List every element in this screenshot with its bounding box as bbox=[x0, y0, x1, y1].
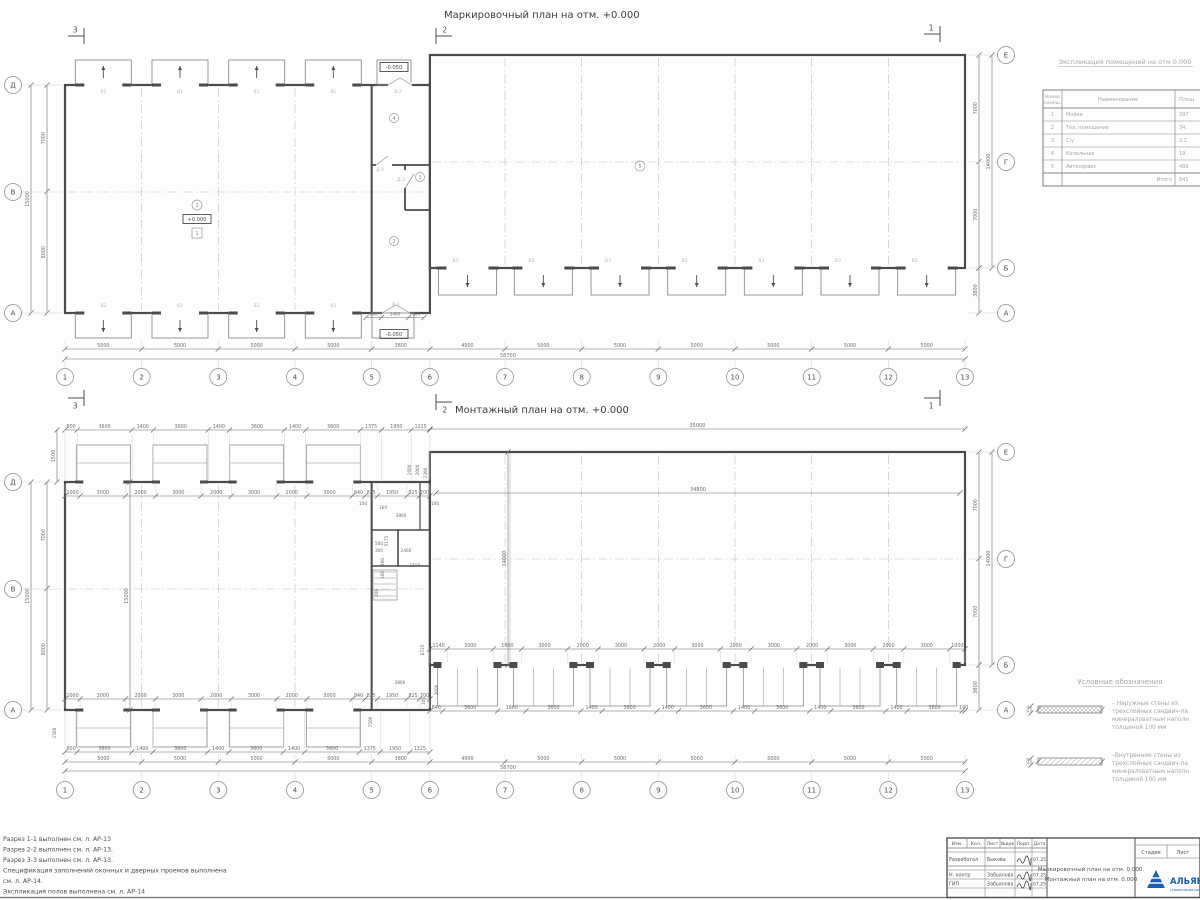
dim-label: 5000 bbox=[921, 756, 933, 762]
gate-leaf bbox=[590, 665, 650, 706]
table-cell: Тех. помещение bbox=[1065, 125, 1109, 131]
dim-label: 5000 bbox=[97, 343, 109, 349]
dim-label: 825 bbox=[367, 490, 376, 496]
tb-name: Забьялова bbox=[987, 873, 1014, 879]
dim-label: 3000 bbox=[248, 490, 260, 496]
dim-label: 2000 bbox=[730, 643, 742, 649]
wall-jamb bbox=[742, 267, 752, 270]
arrow-head bbox=[541, 283, 545, 287]
dim-label: 34800 bbox=[690, 487, 706, 493]
note-line: см. л. АР-14. bbox=[3, 878, 43, 885]
dim-label: 5000 bbox=[537, 343, 549, 349]
arrow-head bbox=[771, 283, 775, 287]
gate-leaf bbox=[76, 710, 130, 747]
axis-number: 3 bbox=[216, 374, 220, 382]
dim-label: 15000 bbox=[124, 588, 130, 604]
dim-label: 1860 bbox=[501, 643, 513, 649]
signature bbox=[1017, 872, 1031, 881]
wall-jamb bbox=[876, 662, 884, 668]
tb-header: №док bbox=[1001, 841, 1015, 847]
dim-label: 3000 bbox=[97, 693, 109, 699]
opening-label: Д-4 bbox=[376, 167, 384, 173]
dim-label: 1140 bbox=[433, 643, 445, 649]
wall-jamb bbox=[305, 709, 313, 712]
opening-label: В3 bbox=[528, 258, 534, 264]
dim-label: 800 bbox=[67, 424, 76, 430]
dim-label: 3000 bbox=[464, 643, 476, 649]
section-number: 1 bbox=[929, 402, 934, 411]
dim-label: 2000 bbox=[210, 490, 222, 496]
opening-gap bbox=[901, 663, 953, 668]
table-cell: 297 bbox=[1179, 112, 1189, 118]
dim-label: 5000 bbox=[614, 756, 626, 762]
arrow-head bbox=[101, 66, 105, 70]
axis-letter: Е bbox=[1004, 52, 1008, 60]
company-logo-icon bbox=[1147, 870, 1165, 888]
opening-label: В2 bbox=[330, 303, 336, 309]
gate-leaf bbox=[76, 445, 130, 482]
opening-gap bbox=[519, 266, 567, 271]
plan-title: Монтажный план на отм. +0.000 bbox=[455, 405, 629, 416]
dim-label: 3600 bbox=[624, 705, 636, 711]
dim-label: 2000 bbox=[134, 490, 146, 496]
arrow-head bbox=[695, 283, 699, 287]
arrow-head bbox=[178, 328, 182, 332]
table-header: Площ bbox=[1179, 97, 1194, 103]
free-dim-label: 3000 bbox=[434, 684, 439, 695]
table-total-label: Итого bbox=[1157, 177, 1172, 183]
free-dim-label: 100 bbox=[359, 501, 367, 506]
gate-leaf bbox=[153, 710, 207, 747]
dim-label: 7000 bbox=[41, 529, 47, 541]
dim-label: 5000 bbox=[251, 756, 263, 762]
opening-gap bbox=[517, 663, 569, 668]
table-cell: 19, bbox=[1179, 151, 1187, 157]
legend-text: трехслойных сэндвич-па bbox=[1112, 708, 1189, 715]
dim-label: 8000 bbox=[41, 643, 47, 655]
free-dim-label: 7500 bbox=[368, 716, 373, 727]
opening-label: В3 bbox=[835, 258, 841, 264]
dim-label: 1400 bbox=[137, 424, 149, 430]
dim-label: 1400 bbox=[890, 705, 902, 711]
free-dim-label: 400 bbox=[380, 558, 385, 566]
section-number: 1 bbox=[929, 24, 934, 33]
dim-label: 3600 bbox=[251, 424, 263, 430]
opening-label: В1 bbox=[100, 89, 106, 95]
dim-label: 800 bbox=[412, 312, 420, 317]
dim-label: 1500 bbox=[51, 450, 57, 463]
table-title: Экспликация помещений на отм 0.000 bbox=[1059, 58, 1192, 66]
dim-label: 3000 bbox=[691, 643, 703, 649]
wall-jamb bbox=[229, 481, 237, 484]
wall-jamb bbox=[586, 662, 594, 668]
opening-label: В3 bbox=[682, 258, 688, 264]
dim-label: 3000 bbox=[97, 490, 109, 496]
dim-label: 3000 bbox=[538, 643, 550, 649]
dim-label: 1400 bbox=[585, 705, 597, 711]
wall-jamb bbox=[277, 481, 285, 484]
dim-label: 5000 bbox=[537, 756, 549, 762]
dim-label: 3600 bbox=[852, 705, 864, 711]
legend-text: –Внутренние стены из bbox=[1112, 753, 1181, 759]
opening-label: В2 bbox=[254, 303, 260, 309]
table-cell: 34, bbox=[1179, 125, 1187, 131]
axis-letter: А bbox=[11, 707, 16, 715]
company-logo-subtext: строительная компания bbox=[1170, 888, 1200, 892]
axis-letter: Б bbox=[1004, 265, 1009, 273]
table-header: помещ. bbox=[1044, 101, 1062, 106]
axis-letter: Г bbox=[1004, 159, 1008, 167]
opening-gap bbox=[673, 266, 721, 271]
gate-leaf bbox=[820, 665, 880, 706]
tb-doc-title: Маркировочный план на отм. 0.000. bbox=[1038, 866, 1145, 873]
wall-jamb bbox=[276, 84, 285, 87]
gate-leaf bbox=[513, 665, 573, 706]
gate-leaf bbox=[437, 665, 497, 706]
axis-number: 8 bbox=[579, 374, 583, 382]
axis-number: 12 bbox=[884, 374, 893, 382]
gate-leaf bbox=[743, 665, 803, 706]
wall-jamb bbox=[122, 84, 131, 87]
table-cell: Автосервис bbox=[1066, 164, 1097, 170]
legend-title: Условные обозначения bbox=[1078, 678, 1163, 686]
axis-letter: А bbox=[1004, 707, 1009, 715]
tb-name: Забьялова bbox=[987, 882, 1014, 888]
wall-jamb bbox=[723, 662, 731, 668]
wall-jamb bbox=[277, 709, 285, 712]
dim-label: 3600 bbox=[327, 424, 339, 430]
dim-label: 1375 bbox=[365, 424, 377, 430]
opening-gap bbox=[443, 266, 491, 271]
opening-gap bbox=[234, 480, 280, 485]
dim-label: 1000 bbox=[66, 693, 78, 699]
dim-label: 1950 bbox=[390, 424, 402, 430]
axis-letter: А bbox=[11, 310, 16, 318]
axis-letter: Д bbox=[10, 82, 16, 90]
dim-label: 5000 bbox=[327, 343, 339, 349]
gate-leaf bbox=[153, 445, 207, 482]
dim-label: 2000 bbox=[210, 693, 222, 699]
arrow-head bbox=[331, 328, 335, 332]
dim-label: 1400 bbox=[814, 705, 826, 711]
arrow-head bbox=[331, 66, 335, 70]
dim-label: 1400 bbox=[738, 705, 750, 711]
wall-jamb bbox=[199, 312, 208, 315]
opening-label: В2 bbox=[100, 303, 106, 309]
opening-gap bbox=[824, 663, 876, 668]
dim-label: 4900 bbox=[461, 343, 473, 349]
opening-gap bbox=[596, 266, 644, 271]
tb-header: Лист bbox=[987, 841, 999, 847]
free-dim-label: 1500 bbox=[52, 727, 57, 738]
wall-jamb bbox=[122, 312, 131, 315]
wall-jamb bbox=[718, 267, 728, 270]
free-dim-label: 8725 bbox=[420, 644, 425, 655]
legend-text: – Наружные стены из bbox=[1112, 701, 1178, 707]
opening-label: Д-3 bbox=[397, 177, 405, 183]
axis-number: 7 bbox=[503, 374, 507, 382]
dim-label: 1400 bbox=[288, 746, 300, 752]
opening-gap bbox=[747, 663, 799, 668]
opening-label: В-1 bbox=[392, 302, 400, 308]
tb-header: Кол. bbox=[971, 841, 981, 847]
opening-gap bbox=[157, 83, 203, 88]
wall-jamb bbox=[666, 267, 676, 270]
dim-label: 1950 bbox=[386, 490, 398, 496]
arrow-head bbox=[178, 66, 182, 70]
table-cell: 1 bbox=[1051, 112, 1054, 118]
dim-label: 14000 bbox=[986, 551, 992, 567]
wall-jamb bbox=[433, 662, 441, 668]
dim-label: 3800 bbox=[973, 284, 979, 297]
tb-role: Разработал bbox=[949, 857, 978, 863]
dim-label: 3000 bbox=[172, 490, 184, 496]
axis-number: 2 bbox=[139, 787, 143, 795]
section-number: 2 bbox=[442, 26, 447, 35]
table-cell: 3 bbox=[1051, 138, 1054, 144]
wall-jamb bbox=[305, 481, 313, 484]
wall-jamb bbox=[739, 662, 747, 668]
elevation-value: -0.050 bbox=[386, 65, 403, 71]
wall-jamb bbox=[794, 267, 804, 270]
dim-label: 5000 bbox=[97, 756, 109, 762]
note-line: Спецификация заполнений оконных и дверны… bbox=[3, 867, 227, 875]
free-dim-label: 160 bbox=[379, 505, 387, 510]
wall-jamb bbox=[353, 481, 361, 484]
opening-gap bbox=[310, 83, 356, 88]
wall-jamb bbox=[75, 709, 83, 712]
tb-date: 07.25 bbox=[1033, 857, 1046, 863]
opening-label: В3 bbox=[452, 258, 458, 264]
dim-label: 5000 bbox=[251, 343, 263, 349]
opening-gap bbox=[80, 311, 126, 316]
table-cell: Капельная bbox=[1066, 151, 1094, 157]
signature bbox=[1017, 856, 1031, 865]
dim-label: 5000 bbox=[614, 343, 626, 349]
opening-gap bbox=[310, 480, 356, 485]
table-cell: 2,2 bbox=[1179, 138, 1187, 144]
dim-label: 7000 bbox=[973, 606, 979, 618]
wall-jamb bbox=[229, 84, 238, 87]
arrow-head bbox=[255, 66, 259, 70]
dim-label: 1950 bbox=[386, 693, 398, 699]
axis-number: 4 bbox=[293, 787, 298, 795]
opening-gap bbox=[594, 663, 646, 668]
axis-number: 10 bbox=[731, 374, 740, 382]
wall-jamb bbox=[948, 267, 958, 270]
dim-label: 3800 bbox=[395, 756, 407, 762]
dim-label: 5000 bbox=[921, 343, 933, 349]
axis-number: 9 bbox=[656, 787, 660, 795]
wall-jamb bbox=[200, 481, 208, 484]
free-dim-label: 100 bbox=[421, 697, 426, 705]
table-header: Номер bbox=[1045, 94, 1061, 100]
wall-jamb bbox=[75, 312, 84, 315]
dim-label: 3800 bbox=[973, 681, 979, 694]
table-cell: 2 bbox=[1051, 125, 1054, 131]
tb-header: Подп. bbox=[1017, 841, 1031, 847]
axis-letter: А bbox=[1004, 310, 1009, 318]
axis-letter: Б bbox=[1004, 662, 1009, 670]
wall-jamb bbox=[493, 662, 501, 668]
tb-doc-title: Монтажный план на отм. 0.000 bbox=[1045, 876, 1138, 883]
table-cell: 486 bbox=[1179, 164, 1189, 170]
wall-jamb bbox=[305, 312, 314, 315]
dim-label: 3600 bbox=[250, 746, 262, 752]
dim-label: 3600 bbox=[99, 424, 111, 430]
opening-gap bbox=[157, 708, 203, 713]
wall-jamb bbox=[152, 312, 161, 315]
wall-jamb bbox=[229, 709, 237, 712]
legend-text: трехслойных сэндвич-па bbox=[1112, 760, 1189, 767]
dim-label: 1325 bbox=[414, 746, 426, 752]
dim-label: 3000 bbox=[768, 643, 780, 649]
arrow-head bbox=[255, 328, 259, 332]
dim-label: 2000 bbox=[882, 643, 894, 649]
dim-label: 1400 bbox=[662, 705, 674, 711]
dim-label: 2000 bbox=[286, 490, 298, 496]
free-dim-label: 2460 bbox=[401, 548, 412, 553]
dim-label: 2000 bbox=[577, 643, 589, 649]
note-line: Экспликация полов выполнена см. л. АР-14 bbox=[3, 889, 145, 896]
legend-text: минераловатным наполн bbox=[1112, 769, 1189, 775]
wall-jamb bbox=[353, 709, 361, 712]
axis-number: 4 bbox=[293, 374, 298, 382]
wall-jamb bbox=[589, 267, 599, 270]
wall-jamb bbox=[352, 84, 361, 87]
opening-gap bbox=[310, 708, 356, 713]
dim-label: 840 bbox=[432, 705, 441, 711]
axis-number: 5 bbox=[369, 787, 373, 795]
room-number: 5 bbox=[638, 164, 641, 170]
free-dim-label: 1600 bbox=[407, 464, 412, 475]
wall-jamb bbox=[229, 312, 238, 315]
dim-label: 3600 bbox=[929, 705, 941, 711]
dim-label: 3600 bbox=[464, 705, 476, 711]
axis-number: 11 bbox=[807, 374, 816, 382]
table-total-value: 841 bbox=[1179, 177, 1189, 183]
wall-jamb bbox=[893, 662, 901, 668]
opening-label: В1 bbox=[177, 89, 183, 95]
wall-jamb bbox=[512, 267, 522, 270]
dim-label: 1860 bbox=[506, 705, 518, 711]
plan-title: Маркировочный план на отм. +0.000 bbox=[444, 10, 640, 21]
elevation-value: +0.000 bbox=[187, 217, 206, 223]
elevation-value: -0.050 bbox=[386, 332, 403, 338]
opening-label: В3 bbox=[912, 258, 918, 264]
dim-label: 2000 bbox=[286, 693, 298, 699]
dim-label: 35000 bbox=[690, 423, 706, 429]
dim-label: 3000 bbox=[844, 643, 856, 649]
tb-header: Изм. bbox=[952, 841, 963, 847]
wall-jamb bbox=[569, 662, 577, 668]
arrow-head bbox=[925, 283, 929, 287]
opening-gap bbox=[903, 266, 951, 271]
free-dim-label: 200 bbox=[374, 589, 379, 597]
tb-role: ГИП bbox=[949, 882, 960, 888]
dim-label: 5000 bbox=[767, 343, 779, 349]
gate-leaf bbox=[230, 445, 284, 482]
free-dim-label: 5175 bbox=[384, 535, 389, 546]
opening-label: В1 bbox=[330, 89, 336, 95]
axis-number: 13 bbox=[961, 787, 970, 795]
room-number: 2 bbox=[392, 239, 395, 245]
opening-gap bbox=[80, 708, 126, 713]
wall-jamb bbox=[152, 709, 160, 712]
dim-label: 1225 bbox=[414, 424, 426, 430]
dim-label: 5000 bbox=[844, 756, 856, 762]
axis-number: 7 bbox=[503, 787, 507, 795]
dim-label: 15000 bbox=[25, 191, 31, 207]
building-left-walls bbox=[65, 85, 430, 313]
company-logo-text: АЛЬЯНС bbox=[1170, 877, 1200, 887]
gate-leaf bbox=[667, 665, 727, 706]
dim-label: 3000 bbox=[323, 490, 335, 496]
section-number: 3 bbox=[73, 402, 78, 411]
dim-label: 800 bbox=[66, 746, 75, 752]
signature bbox=[1017, 881, 1031, 890]
dim-label: 1400 bbox=[212, 746, 224, 752]
wall-jamb bbox=[953, 662, 961, 668]
dim-label: 5000 bbox=[691, 343, 703, 349]
wall-jamb bbox=[352, 312, 361, 315]
wall-jamb bbox=[816, 662, 824, 668]
section-number: 3 bbox=[73, 26, 78, 35]
opening-gap bbox=[749, 266, 797, 271]
cad-canvas: В1В1В1В1В2В2В2В2В3В3В3В3В3В3В3-0.050В-2Д… bbox=[0, 0, 1200, 900]
axis-number: 6 bbox=[428, 787, 433, 795]
dim-label: 14000 bbox=[502, 551, 508, 567]
dim-label: 3000 bbox=[615, 643, 627, 649]
wall-jamb bbox=[646, 662, 654, 668]
axis-number: 11 bbox=[807, 787, 816, 795]
axis-number: 12 bbox=[884, 787, 893, 795]
opening-gap bbox=[441, 663, 493, 668]
dim-label: 8000 bbox=[41, 246, 47, 258]
dim-label: 5000 bbox=[174, 343, 186, 349]
dim-label: 5000 bbox=[691, 756, 703, 762]
free-dim-label: 300 bbox=[375, 548, 383, 553]
gate-leaf bbox=[306, 710, 360, 747]
dim-label: 5000 bbox=[767, 756, 779, 762]
arrow-head bbox=[465, 283, 469, 287]
dim-label: 825 bbox=[409, 693, 418, 699]
tb-name: Быкова bbox=[987, 857, 1006, 863]
legend-text: минераловатным наполн bbox=[1112, 717, 1189, 723]
free-dim-label: 1500 bbox=[410, 563, 421, 568]
dim-label: 3600 bbox=[547, 705, 559, 711]
arrow-head bbox=[101, 328, 105, 332]
dim-label: 5000 bbox=[174, 756, 186, 762]
tb-header: Дата bbox=[1034, 841, 1046, 847]
dim-label: 3600 bbox=[175, 424, 187, 430]
table-cell: 5 bbox=[1051, 164, 1054, 170]
dim-label: 190 bbox=[959, 705, 968, 711]
wall-jamb bbox=[896, 267, 906, 270]
axis-letter: Д bbox=[10, 479, 16, 487]
axis-number: 1 bbox=[63, 374, 67, 382]
free-dim-label: 500 bbox=[375, 541, 383, 546]
opening-gap bbox=[80, 480, 126, 485]
dim-label: 14000 bbox=[986, 154, 992, 170]
axis-number: 9 bbox=[656, 374, 660, 382]
wall-jamb bbox=[75, 84, 84, 87]
dim-label: 1400 bbox=[390, 312, 401, 317]
drawing-sheet: В1В1В1В1В2В2В2В2В3В3В3В3В3В3В3-0.050В-2Д… bbox=[0, 0, 1200, 900]
free-dim-label: 100 bbox=[431, 501, 439, 506]
gate-leaf bbox=[897, 665, 957, 706]
opening-gap bbox=[80, 83, 126, 88]
